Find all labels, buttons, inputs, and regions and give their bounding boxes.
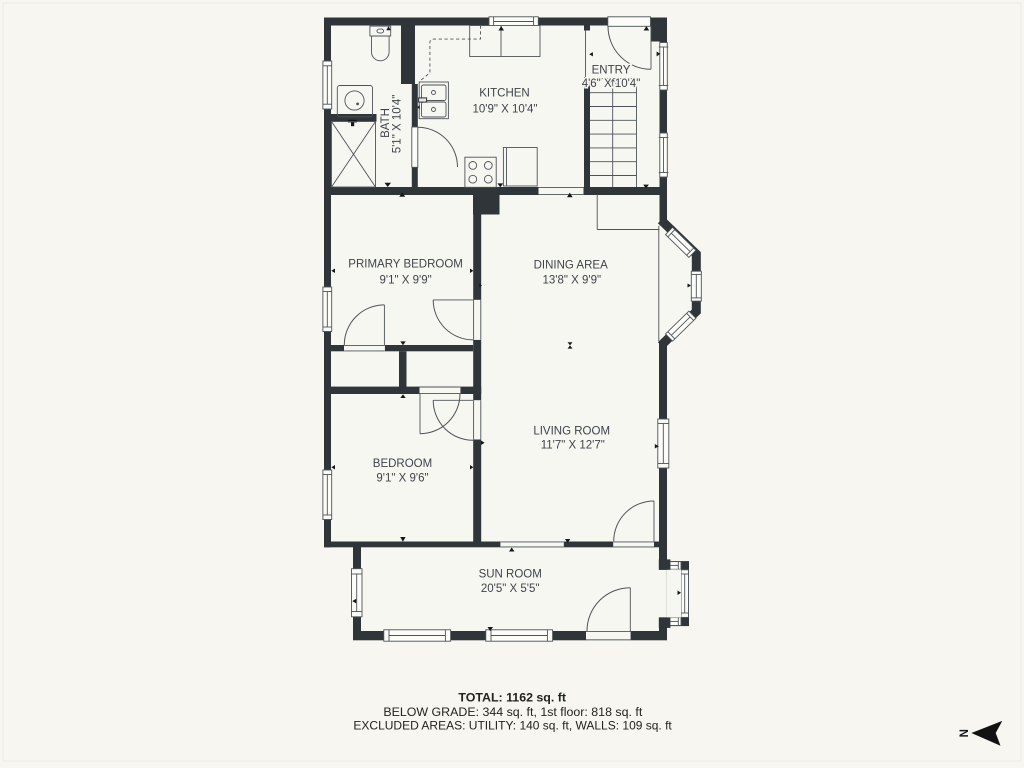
- svg-text:SUN ROOM: SUN ROOM: [479, 569, 542, 581]
- svg-text:20'5" X 5'5": 20'5" X 5'5": [481, 583, 540, 595]
- svg-text:13'8" X 9'9": 13'8" X 9'9": [542, 275, 601, 287]
- svg-text:4'6" X 10'4": 4'6" X 10'4": [582, 78, 641, 90]
- svg-text:TOTAL: 1162 sq. ft: TOTAL: 1162 sq. ft: [458, 690, 566, 704]
- svg-text:BEDROOM: BEDROOM: [373, 458, 432, 470]
- svg-text:LIVING ROOM: LIVING ROOM: [533, 426, 610, 438]
- svg-text:9'1" X 9'6": 9'1" X 9'6": [376, 473, 428, 485]
- svg-text:N: N: [959, 729, 971, 737]
- svg-text:ENTRY: ENTRY: [592, 65, 631, 77]
- svg-text:PRIMARY BEDROOM: PRIMARY BEDROOM: [348, 259, 463, 271]
- svg-text:BATH: BATH: [380, 108, 392, 138]
- svg-text:DINING AREA: DINING AREA: [534, 260, 608, 272]
- svg-text:BELOW GRADE: 344 sq. ft, 1st f: BELOW GRADE: 344 sq. ft, 1st floor: 818 …: [383, 705, 642, 719]
- svg-text:5'1" X 10'4": 5'1" X 10'4": [392, 95, 404, 154]
- svg-text:9'1" X 9'9": 9'1" X 9'9": [379, 275, 431, 287]
- svg-text:EXCLUDED AREAS: UTILITY: 140 s: EXCLUDED AREAS: UTILITY: 140 sq. ft, WAL…: [353, 718, 672, 732]
- svg-text:11'7" X 12'7": 11'7" X 12'7": [541, 440, 605, 452]
- svg-text:10'9" X 10'4": 10'9" X 10'4": [473, 103, 538, 115]
- svg-text:KITCHEN: KITCHEN: [479, 88, 529, 100]
